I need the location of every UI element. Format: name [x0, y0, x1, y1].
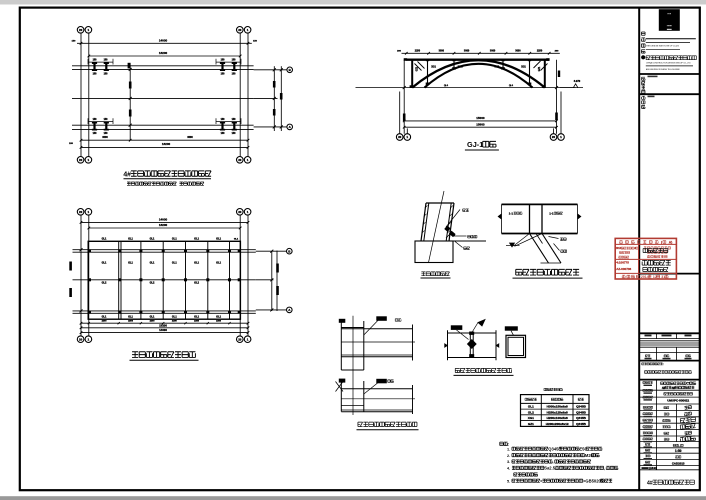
svg-text:31: 31: [661, 275, 665, 279]
svg-text:CAD2013: CAD2013: [672, 461, 685, 465]
svg-text:2200: 2200: [172, 321, 178, 323]
svg-text:GL1: GL1: [102, 262, 107, 265]
svg-text:6600: 6600: [102, 136, 108, 139]
svg-text:THE DESIGN INSTITUTE OF CCDG: THE DESIGN INSTITUTE OF CCDG: [646, 46, 679, 48]
svg-text:4#: 4#: [123, 171, 131, 178]
svg-text:GL1: GL1: [172, 262, 177, 265]
svg-text:XG1: XG1: [528, 416, 534, 420]
svg-text:GL1: GL1: [150, 262, 155, 265]
svg-text:3000: 3000: [515, 49, 521, 52]
svg-text:GL1: GL1: [172, 238, 177, 241]
svg-text:▪▪▪▪▪▪: ▪▪▪▪▪▪: [667, 29, 672, 31]
svg-text:4#: 4#: [647, 480, 653, 486]
svg-text:3.: 3.: [507, 460, 510, 464]
svg-text:3000: 3000: [464, 49, 470, 52]
svg-text:2250: 2250: [537, 49, 543, 52]
svg-text:20: 20: [238, 158, 242, 162]
svg-text:4#: 4#: [672, 386, 676, 390]
svg-text:15600: 15600: [476, 122, 485, 126]
svg-text:,: ,: [552, 459, 553, 464]
svg-text:GL2: GL2: [150, 282, 155, 285]
svg-text:15000: 15000: [476, 116, 485, 120]
svg-text:GL2: GL2: [528, 410, 534, 414]
svg-text:H300x150x6x8: H300x150x6x8: [547, 405, 568, 409]
svg-text:1.: 1.: [507, 447, 510, 451]
svg-text:20: 20: [398, 135, 402, 139]
svg-text:1: 1: [247, 337, 249, 341]
svg-text:H250x125x6x8: H250x125x6x8: [547, 410, 568, 414]
svg-text:GL1: GL1: [102, 238, 107, 241]
svg-text:3.970: 3.970: [574, 79, 581, 83]
svg-text:UMUPC-800021: UMUPC-800021: [667, 399, 689, 403]
svg-text:GL1: GL1: [128, 238, 133, 241]
svg-text:CHINA CONSTRUCTION DESIGN GROU: CHINA CONSTRUCTION DESIGN GROUP CO.,LTD: [646, 61, 691, 64]
svg-text:GL1: GL1: [128, 262, 133, 265]
svg-text:14000: 14000: [159, 39, 168, 43]
svg-text:2200: 2200: [216, 321, 222, 323]
svg-text:1:50: 1:50: [675, 449, 682, 453]
svg-text:20: 20: [552, 135, 556, 139]
svg-text:2200: 2200: [194, 321, 200, 323]
svg-text:H200x100x5x8: H200x100x5x8: [547, 416, 568, 420]
svg-text:GL1: GL1: [194, 262, 199, 265]
svg-text:ADD:BEIJING XICHENG TEL:010-88: ADD:BEIJING XICHENG TEL:010-8808: [646, 68, 679, 71]
svg-text:GL1: GL1: [194, 238, 199, 241]
svg-text:GZ1: GZ1: [528, 422, 534, 426]
svg-text:Q345B: Q345B: [576, 405, 587, 409]
svg-text:1: 1: [560, 135, 562, 139]
svg-text::: :: [663, 363, 664, 366]
svg-text:14000: 14000: [159, 328, 167, 332]
svg-text:12: 12: [653, 275, 657, 279]
svg-text:5.: 5.: [507, 479, 510, 483]
svg-text:Q345B: Q345B: [576, 416, 587, 420]
svg-text:20: 20: [79, 337, 83, 341]
svg-text:2.: 2.: [507, 454, 510, 458]
svg-text:1: 1: [88, 337, 90, 341]
svg-text:GZ1: GZ1: [416, 66, 419, 71]
svg-text:13200: 13200: [159, 51, 168, 55]
svg-text:GL1: GL1: [528, 405, 534, 409]
svg-text:2200: 2200: [102, 321, 108, 323]
svg-text:2014: 2014: [641, 275, 649, 279]
svg-text:Sa2.5: Sa2.5: [544, 466, 556, 471]
svg-text:1: 1: [88, 210, 90, 214]
svg-text:20: 20: [238, 210, 242, 214]
svg-text:AZ-000736: AZ-000736: [616, 267, 631, 271]
svg-text:13200: 13200: [159, 223, 168, 227]
svg-text:3000: 3000: [439, 49, 445, 52]
svg-text:2200: 2200: [128, 321, 134, 323]
svg-text:XG1: XG1: [458, 66, 463, 69]
svg-text:GL2: GL2: [102, 282, 107, 285]
svg-text:2250: 2250: [415, 49, 421, 52]
svg-text:GL1: GL1: [216, 262, 221, 265]
svg-text:3000: 3000: [490, 49, 496, 52]
svg-text:1: 1: [247, 28, 249, 32]
svg-text:,: ,: [604, 466, 605, 471]
svg-text:13200: 13200: [159, 323, 167, 327]
svg-text:▪ ▪ ▪: ▪ ▪ ▪: [668, 13, 672, 15]
svg-text:GL1: GL1: [194, 315, 199, 318]
svg-text:XG1: XG1: [521, 66, 526, 69]
svg-text:2013: 2013: [615, 246, 621, 250]
svg-text:XG1: XG1: [495, 66, 500, 69]
svg-text:20: 20: [79, 158, 83, 162]
svg-text:A): A): [669, 240, 673, 244]
svg-text:XG1: XG1: [431, 66, 436, 69]
svg-text:1: 1: [247, 210, 249, 214]
svg-text:GL1: GL1: [150, 238, 155, 241]
svg-text:GL1: GL1: [172, 315, 177, 318]
svg-text:4#: 4#: [662, 386, 666, 390]
svg-text:1: 1: [88, 158, 90, 162]
svg-text:GL1: GL1: [150, 315, 155, 318]
svg-text:20: 20: [238, 28, 242, 32]
svg-text:GJ-1: GJ-1: [467, 140, 483, 149]
svg-text:▪ ▪▪ ▪▪: ▪ ▪▪ ▪▪: [667, 26, 672, 28]
svg-text:GZ1: GZ1: [538, 66, 541, 71]
svg-text:1: 1: [88, 28, 90, 32]
svg-text:20: 20: [238, 337, 242, 341]
svg-text:GL1: GL1: [216, 315, 221, 318]
svg-text:13200: 13200: [162, 142, 171, 146]
svg-text:GL2: GL2: [194, 282, 199, 285]
svg-text:1: 1: [247, 158, 249, 162]
svg-text:14000: 14000: [159, 218, 168, 222]
svg-text:1-1: 1-1: [509, 211, 514, 215]
svg-text:4.: 4.: [507, 467, 510, 471]
svg-text::(A3: :(A3: [649, 467, 654, 470]
svg-text:2200: 2200: [150, 321, 156, 323]
svg-text:20: 20: [79, 210, 83, 214]
svg-text:GL1: GL1: [102, 315, 107, 318]
svg-text:6600: 6600: [187, 136, 193, 139]
svg-text:GL1: GL1: [216, 238, 221, 241]
svg-text:4:100775: 4:100775: [616, 260, 629, 264]
svg-text:1-1: 1-1: [549, 211, 554, 215]
svg-text:GL1: GL1: [128, 315, 133, 318]
svg-text:Q345B: Q345B: [576, 410, 587, 414]
svg-text:1: 1: [406, 135, 408, 139]
svg-text:H200x200x8x12: H200x200x8x12: [546, 422, 569, 426]
svg-text:Q345B: Q345B: [576, 422, 587, 426]
svg-text:20: 20: [79, 28, 83, 32]
